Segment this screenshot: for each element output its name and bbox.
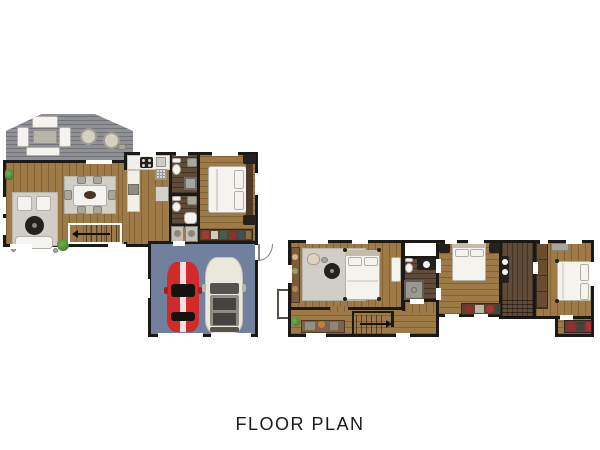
oven bbox=[128, 184, 139, 195]
suv-mirror bbox=[202, 284, 206, 292]
window bbox=[255, 173, 259, 195]
pillow bbox=[580, 283, 589, 300]
duvet-fold bbox=[562, 263, 564, 299]
toilet-tank bbox=[172, 196, 181, 201]
console-item bbox=[292, 254, 298, 260]
burner bbox=[148, 164, 151, 167]
ottoman bbox=[321, 257, 328, 263]
side-stool bbox=[53, 248, 58, 253]
refrigerator bbox=[155, 186, 169, 202]
outdoor-bench bbox=[26, 147, 60, 156]
burner bbox=[148, 159, 151, 162]
desk-item bbox=[330, 322, 338, 330]
bed-post bbox=[343, 248, 347, 252]
car-windshield bbox=[171, 284, 195, 297]
door-gap bbox=[560, 315, 573, 320]
suv-rear-window bbox=[210, 327, 239, 332]
dresser-item bbox=[229, 231, 236, 239]
deck-door bbox=[86, 160, 112, 164]
drying-rack bbox=[155, 169, 167, 180]
desk-item bbox=[305, 322, 315, 330]
bed-post bbox=[377, 248, 381, 252]
shower bbox=[184, 177, 197, 190]
dresser-item bbox=[246, 231, 251, 239]
window bbox=[212, 152, 238, 156]
closet-cabinet bbox=[536, 243, 548, 309]
vanity-sink bbox=[423, 261, 430, 268]
round-table-center bbox=[330, 269, 334, 273]
window bbox=[590, 262, 594, 286]
window bbox=[445, 240, 457, 244]
dining-chair bbox=[77, 176, 86, 184]
wardrobe bbox=[391, 257, 401, 282]
stair-arrow-head bbox=[72, 230, 78, 238]
shelf-plant bbox=[5, 169, 13, 180]
outdoor-chair bbox=[59, 127, 71, 147]
bath-sink bbox=[502, 259, 508, 265]
bath-sink bbox=[187, 158, 197, 167]
dining-chair bbox=[64, 190, 72, 200]
window bbox=[396, 333, 410, 337]
headboard bbox=[345, 250, 380, 256]
garage-door bbox=[211, 333, 251, 338]
nightstand bbox=[439, 243, 450, 253]
window bbox=[566, 240, 582, 244]
window bbox=[1, 197, 6, 214]
window bbox=[140, 152, 156, 156]
dresser-item bbox=[577, 322, 584, 331]
bench bbox=[551, 243, 569, 251]
shower-drain bbox=[411, 287, 417, 293]
desk-item bbox=[318, 321, 325, 328]
nightstand bbox=[489, 243, 500, 253]
pillow bbox=[348, 257, 362, 266]
side-table bbox=[118, 144, 126, 150]
suv-mirror bbox=[242, 284, 246, 292]
bed-post bbox=[555, 259, 559, 263]
nightstand bbox=[243, 154, 256, 164]
dresser-item bbox=[238, 231, 244, 239]
dresser-item bbox=[475, 305, 484, 313]
duvet-fold bbox=[347, 280, 378, 282]
egg-chair bbox=[80, 128, 97, 145]
toilet bbox=[172, 202, 181, 212]
door-gap bbox=[410, 299, 424, 304]
armchair bbox=[307, 253, 320, 265]
dining-chair bbox=[93, 176, 102, 184]
stair-wall bbox=[391, 311, 394, 327]
stairs-first-floor bbox=[68, 223, 122, 244]
armchair bbox=[36, 196, 51, 211]
pillow bbox=[470, 249, 484, 257]
garage-entry-gap bbox=[173, 241, 185, 246]
suv-windshield bbox=[210, 283, 239, 294]
bath-sink bbox=[187, 196, 197, 205]
headboard bbox=[246, 164, 253, 215]
plan-title: FLOOR PLAN bbox=[0, 414, 600, 435]
outdoor-table bbox=[33, 130, 57, 144]
window bbox=[540, 240, 548, 244]
deck bbox=[6, 114, 133, 161]
window bbox=[108, 244, 126, 249]
suv-sunroof bbox=[213, 313, 236, 325]
console-item bbox=[292, 286, 298, 292]
toilet-tank bbox=[172, 158, 181, 163]
toilet bbox=[405, 263, 413, 273]
stairs-second-floor bbox=[352, 311, 393, 335]
table-platter bbox=[84, 191, 96, 199]
window bbox=[146, 279, 150, 298]
white-suv bbox=[205, 257, 243, 334]
bath-sink bbox=[502, 269, 508, 275]
window bbox=[10, 244, 32, 249]
toilet bbox=[172, 164, 181, 175]
armchair bbox=[17, 196, 32, 211]
dining-chair bbox=[93, 206, 102, 214]
window bbox=[352, 240, 368, 244]
outdoor-sofa bbox=[32, 116, 58, 128]
window bbox=[445, 314, 459, 318]
kitchen-sink bbox=[156, 157, 166, 167]
bed-post bbox=[555, 299, 559, 303]
pillow bbox=[455, 249, 469, 257]
suv-sunroof bbox=[213, 298, 236, 310]
car-mirror bbox=[164, 287, 168, 294]
bed-post bbox=[377, 297, 381, 301]
burner bbox=[142, 159, 145, 162]
door-swing bbox=[258, 244, 273, 261]
bathtub bbox=[184, 212, 197, 224]
door-gap bbox=[436, 259, 441, 273]
potted-plant bbox=[291, 317, 300, 326]
dresser-item bbox=[567, 322, 575, 331]
stairwell-steps bbox=[501, 297, 534, 317]
dresser-item bbox=[465, 305, 473, 313]
coffee-table-center bbox=[32, 223, 37, 228]
duvet-fold bbox=[216, 169, 218, 211]
toilet-tank bbox=[405, 258, 413, 262]
window bbox=[1, 218, 6, 235]
stair-arrow-line bbox=[78, 233, 110, 235]
pillow bbox=[234, 170, 244, 189]
garage-door bbox=[158, 333, 203, 338]
dresser-item bbox=[486, 305, 494, 313]
car-rear-window bbox=[171, 312, 195, 321]
bed-post bbox=[343, 297, 347, 301]
window bbox=[288, 265, 292, 283]
pillow bbox=[234, 191, 244, 210]
dresser-item bbox=[586, 322, 591, 331]
window bbox=[306, 240, 328, 244]
console-item bbox=[292, 268, 298, 274]
outdoor-chair bbox=[17, 127, 29, 147]
floor-plan-canvas: FLOOR PLAN bbox=[0, 0, 600, 450]
dresser-item bbox=[202, 231, 209, 239]
door-gap bbox=[436, 288, 441, 300]
stair-steps bbox=[356, 315, 384, 335]
window bbox=[306, 333, 326, 337]
burner bbox=[142, 164, 145, 167]
dining-chair bbox=[77, 206, 86, 214]
pillow bbox=[580, 264, 589, 281]
dresser-item bbox=[220, 231, 227, 239]
washer-door bbox=[174, 230, 181, 237]
stair-arrow-line bbox=[360, 323, 386, 325]
door-gap bbox=[533, 262, 538, 274]
window bbox=[176, 152, 188, 156]
dresser-item bbox=[495, 305, 500, 313]
window bbox=[468, 240, 484, 244]
red-sports-car bbox=[167, 262, 199, 332]
dresser-item bbox=[211, 231, 218, 239]
dryer-door bbox=[188, 230, 195, 237]
nightstand bbox=[243, 215, 256, 225]
pillow bbox=[364, 257, 378, 266]
dining-chair bbox=[108, 190, 116, 200]
room-opening bbox=[405, 305, 436, 313]
car-stripe bbox=[180, 262, 186, 332]
window bbox=[474, 314, 488, 318]
room-opening bbox=[330, 306, 348, 312]
